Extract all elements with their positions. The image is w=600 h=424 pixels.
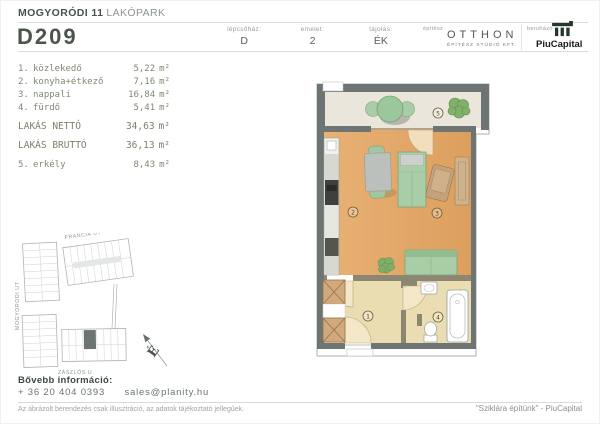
entry-threshold <box>347 349 373 356</box>
room-row: 1. közlekedő 5,22 m² <box>18 63 170 76</box>
project-title-bold: MOGYORÓDI 11 <box>18 7 103 19</box>
street-label-mogyorodi: MOGYORÓDI ÚT <box>15 281 21 330</box>
bathtub <box>447 290 468 342</box>
field-floor: emelet: 2 <box>278 26 346 47</box>
kitchen-counter <box>324 138 339 275</box>
room-row: 4. fürdő 5,41 m² <box>18 102 170 115</box>
wardrobe <box>455 157 469 205</box>
disclaimer-text: Az ábrázolt berendezés csak illusztráció… <box>18 406 244 413</box>
sofa <box>405 250 457 275</box>
highlighted-unit <box>84 330 96 349</box>
total-net-row: LAKÁS NETTÓ 34,63 m² <box>18 120 170 133</box>
balcony-row: 5. erkély 8,43 m² <box>18 159 170 172</box>
svg-text:1: 1 <box>366 313 370 320</box>
siteplan-drawing: FRANCIA ÚT MOGYORÓDI ÚT ZÁSZLÓS U. É <box>15 233 215 381</box>
architect-name: OTTHON <box>447 29 517 41</box>
contact-row: + 36 20 404 0393 sales@planity.hu <box>18 387 209 398</box>
street-label-francia: FRANCIA ÚT <box>64 233 102 241</box>
room-marker-3: 3 <box>432 208 442 218</box>
area-table: 1. közlekedő 5,22 m² 2. konyha+étkező 7,… <box>18 63 170 172</box>
header-divider-bottom <box>18 51 588 52</box>
contact-heading: Bővebb információ: <box>18 375 113 386</box>
phone-number: + 36 20 404 0393 <box>18 387 105 398</box>
building-left-top <box>23 242 60 302</box>
shaft-1 <box>323 280 345 304</box>
room-marker-1: 1 <box>363 311 373 321</box>
total-gross-row: LAKÁS BRUTTÓ 36,13 m² <box>18 139 170 152</box>
company-slogan: "Sziklára építünk" - PiuCapital <box>300 404 582 413</box>
bed <box>398 152 426 207</box>
shaft-2 <box>323 318 345 342</box>
header-vertical-divider <box>521 24 522 50</box>
email-link[interactable]: sales@planity.hu <box>124 387 209 398</box>
building-left-bottom <box>22 314 58 367</box>
plant-balcony <box>448 98 470 118</box>
footer-divider <box>18 402 582 403</box>
room-row: 2. konyha+étkező 7,16 m² <box>18 76 170 89</box>
developer-name: PiuCapital <box>536 39 582 50</box>
room-row: 3. nappali 16,84 m² <box>18 89 170 102</box>
svg-text:3: 3 <box>435 210 439 217</box>
unit-id: D209 <box>17 24 78 50</box>
north-compass: É <box>143 334 167 366</box>
balcony-wall-notch <box>323 82 343 91</box>
room-marker-2: 2 <box>348 207 358 217</box>
building-top <box>63 239 134 286</box>
toilet <box>424 322 437 342</box>
shaft-gap <box>323 304 345 318</box>
field-orientation: tájolás: ÉK <box>347 26 415 47</box>
room-marker-4: 4 <box>433 312 443 322</box>
svg-text:2: 2 <box>351 209 355 216</box>
piucapital-logo-icon <box>549 21 576 38</box>
unit-fields: lépcsőház: D emelet: 2 tájolás: ÉK <box>210 26 415 47</box>
room-marker-5: 5 <box>433 108 443 118</box>
sink <box>421 282 437 294</box>
project-title-light: LAKÓPARK <box>106 7 165 19</box>
architect-subtitle: ÉPÍTÉSZ STÚDIÓ KFT. <box>447 43 517 48</box>
field-staircase: lépcsőház: D <box>210 26 278 47</box>
header-divider-top <box>18 22 588 23</box>
project-title: MOGYORÓDI 11LAKÓPARK <box>18 7 165 19</box>
courtyard-line <box>112 284 114 329</box>
architect-label: építész <box>423 26 443 32</box>
floorplan-sheet: MOGYORÓDI 11LAKÓPARK D209 lépcsőház: D e… <box>0 0 600 424</box>
floorplan-drawing: 1 2 3 4 5 <box>283 72 495 390</box>
svg-text:5: 5 <box>436 110 440 117</box>
svg-text:4: 4 <box>436 314 440 321</box>
building-bottom <box>62 328 127 361</box>
